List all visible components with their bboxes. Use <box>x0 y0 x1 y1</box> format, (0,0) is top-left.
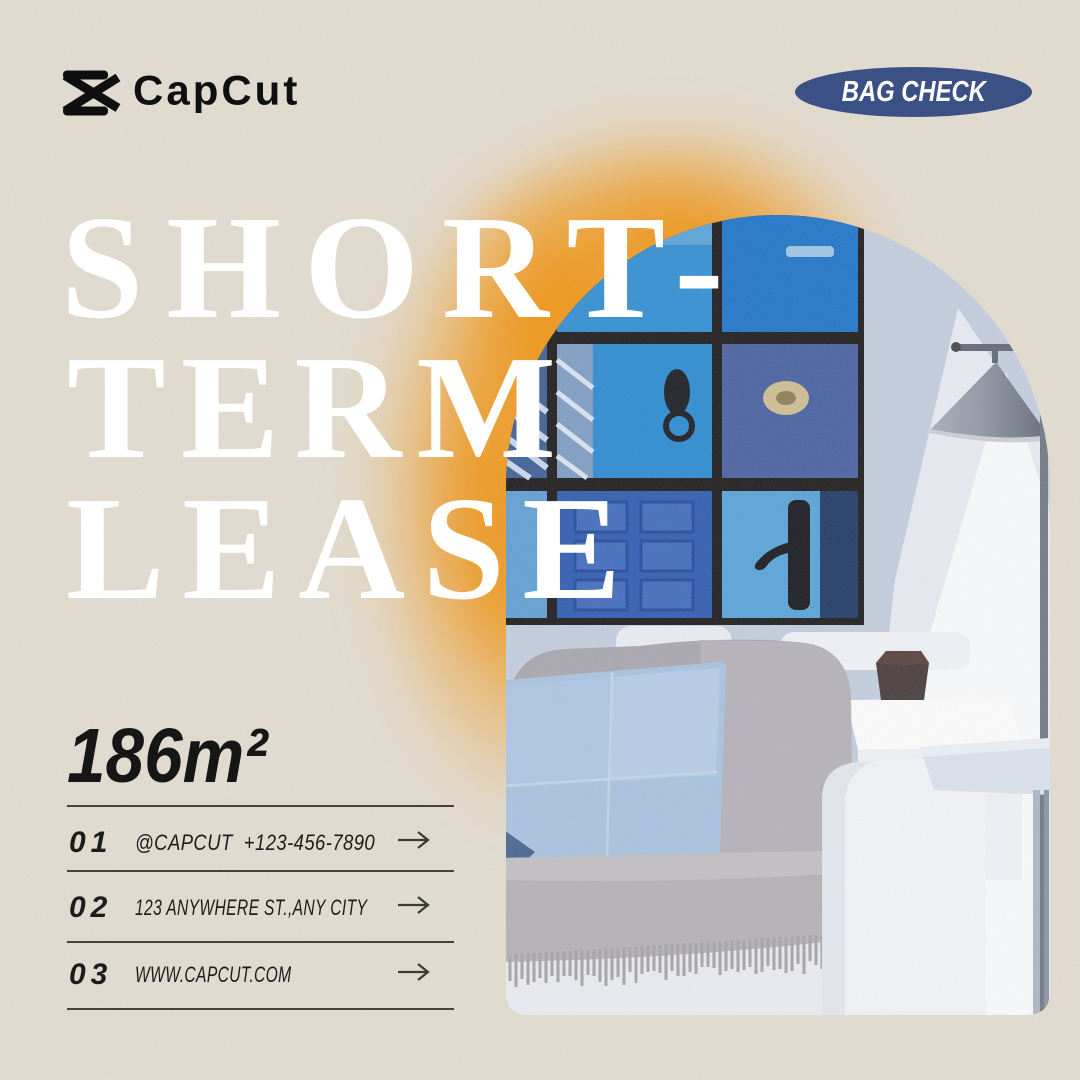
svg-text:CapCut: CapCut <box>133 69 300 114</box>
